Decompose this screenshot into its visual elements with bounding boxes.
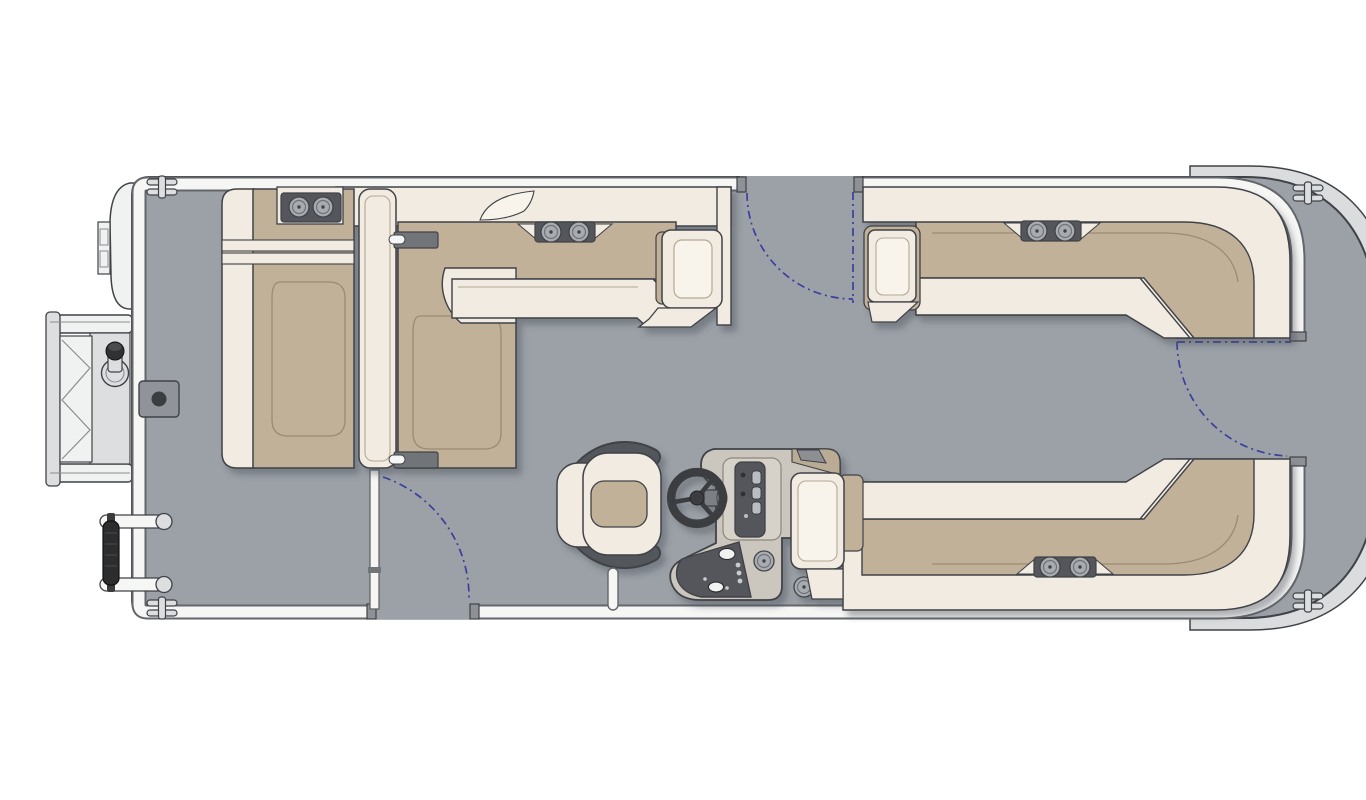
cupholder-icon [1070, 557, 1090, 577]
gauge-icon [752, 487, 761, 499]
gate-gap-mask [371, 620, 477, 630]
stern-bench-backrest [222, 189, 254, 468]
armrest-pad [674, 240, 712, 298]
gate-post [737, 177, 746, 192]
switch-button [738, 579, 743, 584]
fender [103, 521, 119, 585]
starboard-bow-lounge [791, 459, 1290, 610]
switch-button [725, 586, 729, 590]
pylon-knob-top [109, 343, 122, 351]
captains-chair [557, 450, 661, 560]
cupholder-icon [313, 197, 333, 217]
cupholder-icon [1055, 221, 1075, 241]
cupholder-icon [1040, 557, 1060, 577]
port-gate-opening [737, 165, 863, 193]
ignition-switch [719, 549, 735, 560]
switch-button [703, 577, 707, 581]
armrest-wedge [806, 569, 843, 599]
switch-button [737, 571, 742, 576]
folded-ladder [60, 336, 92, 462]
cushion-divider [222, 240, 354, 251]
latch-handle [389, 235, 405, 244]
table-socket [152, 392, 167, 407]
latch-handle [389, 455, 405, 464]
open-gate-leaf [370, 470, 379, 609]
rail-ring [156, 514, 172, 530]
port-bow-lounge [863, 187, 1290, 338]
dash-button [741, 473, 746, 478]
gate-post [1290, 332, 1306, 341]
cupholder-icon [569, 222, 589, 242]
armrest-pad [876, 238, 909, 295]
gauge-icon [752, 502, 761, 514]
table-base-mount [139, 381, 179, 417]
gate-gap-deck [1289, 339, 1309, 460]
cupholder-icon [754, 551, 774, 571]
starboard-open-gate [368, 470, 381, 609]
gate-post [854, 177, 863, 192]
cupholder-icon [541, 222, 561, 242]
stern-bench-seat [253, 189, 354, 468]
dash-button [741, 492, 746, 497]
wheel-hub [690, 491, 704, 505]
cupholder-icon [289, 197, 309, 217]
gate-hinge [368, 567, 381, 573]
dash-button [744, 514, 748, 518]
switch-button [736, 563, 741, 568]
gate-post [1290, 457, 1306, 466]
cupholder-icon [1027, 221, 1047, 241]
floor-plan-figure [40, 16, 1366, 784]
seat-front-edge [452, 279, 677, 325]
chair-insert [591, 481, 647, 527]
grab-post [608, 568, 618, 610]
accessory-switch [709, 582, 724, 592]
gauge-icon [752, 471, 761, 484]
platform-end-cap [46, 312, 60, 486]
armrest-pad [798, 481, 837, 561]
gate-gap-deck [371, 604, 477, 619]
rail-ring [156, 577, 172, 593]
starboard-gate-opening [367, 604, 479, 630]
swim-platform-ladder [46, 312, 132, 486]
gate-gap-deck [740, 176, 862, 193]
stern-equipment [46, 183, 144, 486]
gate-gap-mask [740, 165, 862, 176]
gate-post [470, 604, 479, 619]
cushion-divider [222, 253, 354, 264]
bow-gate-opening [1289, 332, 1309, 466]
floor-plan-canvas [40, 16, 1366, 784]
